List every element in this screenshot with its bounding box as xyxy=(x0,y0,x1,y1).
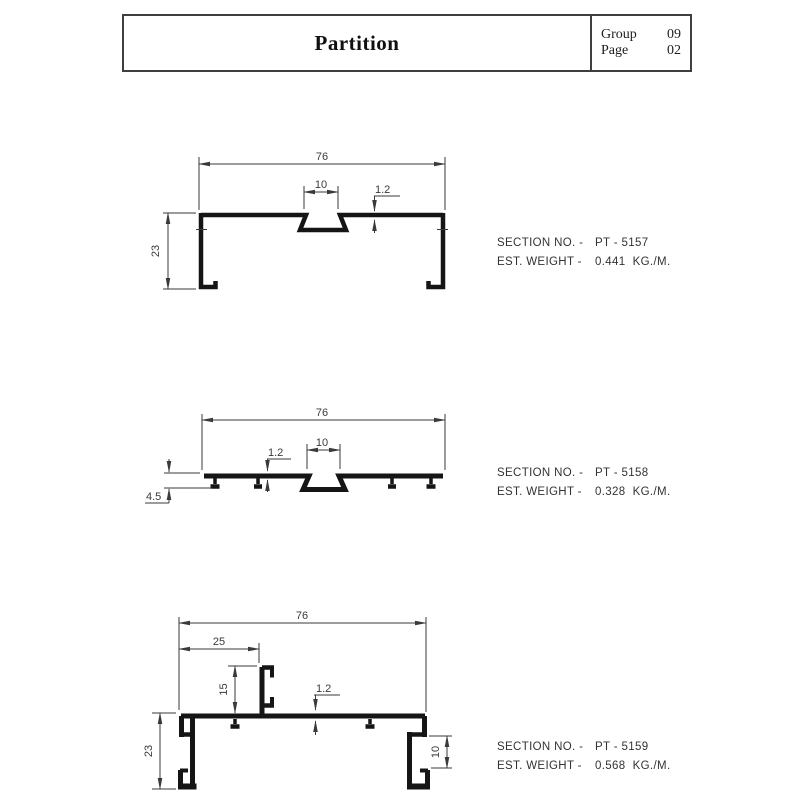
dim-channel: 10 xyxy=(429,736,452,768)
header-box: Partition Group 09 Page 02 xyxy=(122,14,692,72)
profile-top-bar xyxy=(201,215,443,230)
header-meta-cell: Group 09 Page 02 xyxy=(592,16,690,70)
dim-label-wall: 1.2 xyxy=(375,184,390,196)
spec-block-pt-5157: SECTION NO. - PT - 5157 EST. WEIGHT - 0.… xyxy=(497,237,707,268)
section-no-row: SECTION NO. - PT - 5159 xyxy=(497,741,707,753)
dim-label-slot: 10 xyxy=(316,437,328,449)
profile-left-leg xyxy=(201,213,216,287)
header-title-cell: Partition xyxy=(124,16,592,70)
section-drawing-pt-5159: 76 25 15 1.2 23 10 xyxy=(140,600,470,800)
section-no-label: SECTION NO. - xyxy=(497,741,595,753)
dim-label-wall: 1.2 xyxy=(268,447,283,459)
group-label: Group xyxy=(601,27,637,43)
dim-slot: 10 xyxy=(304,179,338,209)
profile-outline xyxy=(178,667,430,787)
dim-label-width: 76 xyxy=(296,610,308,622)
est-weight-value: 0.568 KG./M. xyxy=(595,760,671,772)
dim-wall-thickness: 1.2 xyxy=(374,184,400,233)
profile-outline xyxy=(204,476,443,490)
section-no-value: PT - 5158 xyxy=(595,467,648,479)
dim-label-flange-offset: 25 xyxy=(213,636,225,648)
dim-label-channel: 10 xyxy=(430,746,442,758)
extension-lines xyxy=(179,617,426,712)
dim-width: 76 xyxy=(179,610,426,712)
profile-right-leg xyxy=(429,213,444,287)
page-value: 02 xyxy=(667,43,681,59)
profile-right-leg xyxy=(407,716,430,787)
page-row: Page 02 xyxy=(601,43,681,59)
dim-label-width: 76 xyxy=(316,151,328,163)
group-row: Group 09 xyxy=(601,27,681,43)
dim-label-width: 76 xyxy=(316,407,328,419)
section-drawing-pt-5158: 76 10 1.2 4.5 xyxy=(140,400,470,515)
dim-wall-thickness: 1.2 xyxy=(267,447,291,492)
rib-stems xyxy=(215,478,431,484)
est-weight-label: EST. WEIGHT - xyxy=(497,760,595,772)
section-no-label: SECTION NO. - xyxy=(497,467,595,479)
section-no-row: SECTION NO. - PT - 5158 xyxy=(497,467,707,479)
page-title: Partition xyxy=(315,31,400,56)
catalog-page: Partition Group 09 Page 02 76 xyxy=(0,0,800,800)
dim-upstand-height: 15 xyxy=(218,666,257,713)
group-value: 09 xyxy=(667,27,681,43)
dim-label-height: 23 xyxy=(143,745,155,757)
dim-wall-thickness: 1.2 xyxy=(314,683,340,735)
section-drawing-pt-5157: 76 10 1.2 23 xyxy=(140,145,470,305)
section-no-row: SECTION NO. - PT - 5157 xyxy=(497,237,707,249)
est-weight-label: EST. WEIGHT - xyxy=(497,256,595,268)
est-weight-value: 0.328 KG./M. xyxy=(595,486,671,498)
profile-outline xyxy=(196,213,448,287)
est-weight-value: 0.441 KG./M. xyxy=(595,256,671,268)
section-no-label: SECTION NO. - xyxy=(497,237,595,249)
dim-height: 23 xyxy=(143,713,176,789)
dim-label-height: 4.5 xyxy=(146,491,161,503)
profile-left-leg xyxy=(178,716,197,787)
dim-slot: 10 xyxy=(307,437,340,469)
section-no-value: PT - 5159 xyxy=(595,741,648,753)
rib-stems xyxy=(235,719,370,724)
est-weight-row: EST. WEIGHT - 0.568 KG./M. xyxy=(497,760,707,772)
est-weight-label: EST. WEIGHT - xyxy=(497,486,595,498)
section-no-value: PT - 5157 xyxy=(595,237,648,249)
est-weight-row: EST. WEIGHT - 0.328 KG./M. xyxy=(497,486,707,498)
extension-lines xyxy=(152,713,176,789)
profile-plate xyxy=(204,476,443,490)
dim-label-upstand: 15 xyxy=(218,683,230,695)
page-label: Page xyxy=(601,43,628,59)
dim-label-wall: 1.2 xyxy=(316,683,331,695)
dim-label-slot: 10 xyxy=(315,179,327,191)
est-weight-row: EST. WEIGHT - 0.441 KG./M. xyxy=(497,256,707,268)
dim-height: 23 xyxy=(150,213,196,289)
spec-block-pt-5158: SECTION NO. - PT - 5158 EST. WEIGHT - 0.… xyxy=(497,467,707,498)
dim-label-height: 23 xyxy=(150,245,162,257)
spec-block-pt-5159: SECTION NO. - PT - 5159 EST. WEIGHT - 0.… xyxy=(497,741,707,772)
dim-flange-offset: 25 xyxy=(179,636,259,663)
